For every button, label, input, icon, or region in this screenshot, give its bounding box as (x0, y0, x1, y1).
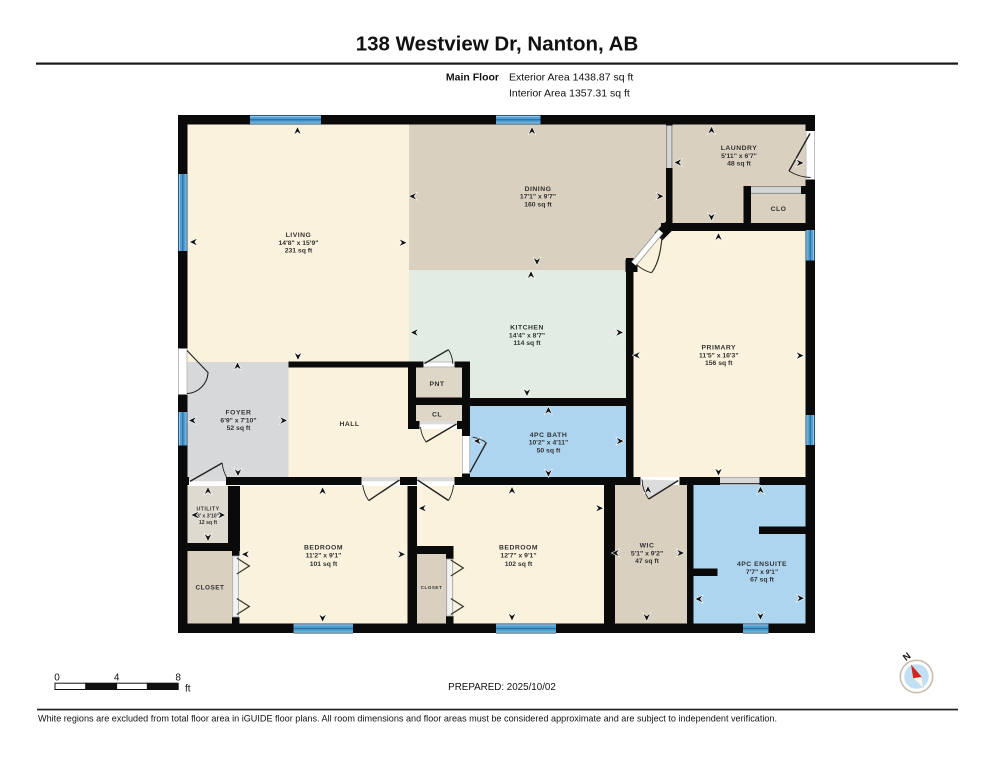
svg-text:52 sq ft: 52 sq ft (227, 425, 252, 432)
svg-text:WIC: WIC (640, 543, 655, 550)
svg-text:0: 0 (54, 673, 60, 684)
svg-text:160 sq ft: 160 sq ft (524, 201, 552, 208)
svg-text:156 sq ft: 156 sq ft (705, 360, 733, 367)
svg-text:47 sq ft: 47 sq ft (635, 558, 660, 565)
svg-text:8: 8 (175, 673, 181, 684)
svg-text:6'9" x 7'10": 6'9" x 7'10" (220, 417, 256, 424)
svg-text:7'7" x 9'1": 7'7" x 9'1" (746, 569, 778, 576)
svg-text:48 sq ft: 48 sq ft (727, 161, 752, 168)
svg-text:DINING: DINING (525, 186, 552, 193)
svg-text:4: 4 (114, 673, 120, 684)
svg-text:PNT: PNT (429, 381, 444, 388)
svg-text:10'2" x 4'11": 10'2" x 4'11" (529, 440, 569, 447)
svg-text:PREPARED: 2025/10/02: PREPARED: 2025/10/02 (448, 682, 556, 693)
svg-text:4PC ENSUITE: 4PC ENSUITE (737, 561, 787, 568)
svg-text:BEDROOM: BEDROOM (499, 544, 538, 551)
svg-text:Exterior Area 1438.87 sq ft: Exterior Area 1438.87 sq ft (509, 72, 633, 84)
svg-text:138 Westview Dr, Nanton, AB: 138 Westview Dr, Nanton, AB (356, 33, 639, 56)
svg-text:5'11" x 6'7": 5'11" x 6'7" (721, 153, 757, 160)
svg-text:LAUNDRY: LAUNDRY (721, 145, 757, 152)
svg-text:50 sq ft: 50 sq ft (537, 447, 562, 454)
svg-text:5'1" x 9'2": 5'1" x 9'2" (631, 550, 663, 557)
svg-text:White regions are excluded fro: White regions are excluded from total fl… (38, 714, 777, 724)
svg-text:11'2" x 9'1": 11'2" x 9'1" (306, 553, 342, 560)
svg-text:ft: ft (185, 684, 191, 695)
svg-text:FOYER: FOYER (226, 410, 252, 417)
svg-text:CLOSET: CLOSET (196, 585, 225, 592)
svg-text:4PC BATH: 4PC BATH (530, 432, 567, 439)
svg-text:HALL: HALL (339, 421, 359, 428)
svg-text:12'7" x 9'1": 12'7" x 9'1" (500, 553, 536, 560)
svg-text:CLO: CLO (771, 206, 787, 213)
svg-text:102 sq ft: 102 sq ft (505, 561, 533, 568)
svg-text:12 sq ft: 12 sq ft (199, 520, 217, 526)
svg-text:UTILITY: UTILITY (196, 507, 219, 513)
svg-text:CLOSET: CLOSET (421, 585, 443, 590)
svg-text:CL: CL (432, 411, 442, 418)
svg-text:Main Floor: Main Floor (446, 72, 499, 84)
svg-text:KITCHEN: KITCHEN (510, 325, 544, 332)
svg-text:Interior Area 1357.31 sq ft: Interior Area 1357.31 sq ft (509, 88, 630, 100)
svg-text:LIVING: LIVING (286, 232, 312, 239)
svg-text:231 sq ft: 231 sq ft (285, 248, 313, 255)
svg-text:3' x 3'10": 3' x 3'10" (197, 513, 220, 519)
svg-text:14'8" x 15'9": 14'8" x 15'9" (279, 240, 319, 247)
svg-text:114 sq ft: 114 sq ft (513, 340, 541, 347)
svg-text:PRIMARY: PRIMARY (702, 345, 737, 352)
svg-text:101 sq ft: 101 sq ft (310, 561, 338, 568)
svg-text:17'1" x 9'7": 17'1" x 9'7" (520, 194, 556, 201)
svg-text:67 sq ft: 67 sq ft (750, 577, 775, 584)
svg-text:14'4" x 8'7": 14'4" x 8'7" (509, 332, 545, 339)
svg-text:BEDROOM: BEDROOM (304, 544, 343, 551)
svg-text:11'5" x 16'3": 11'5" x 16'3" (699, 352, 739, 359)
